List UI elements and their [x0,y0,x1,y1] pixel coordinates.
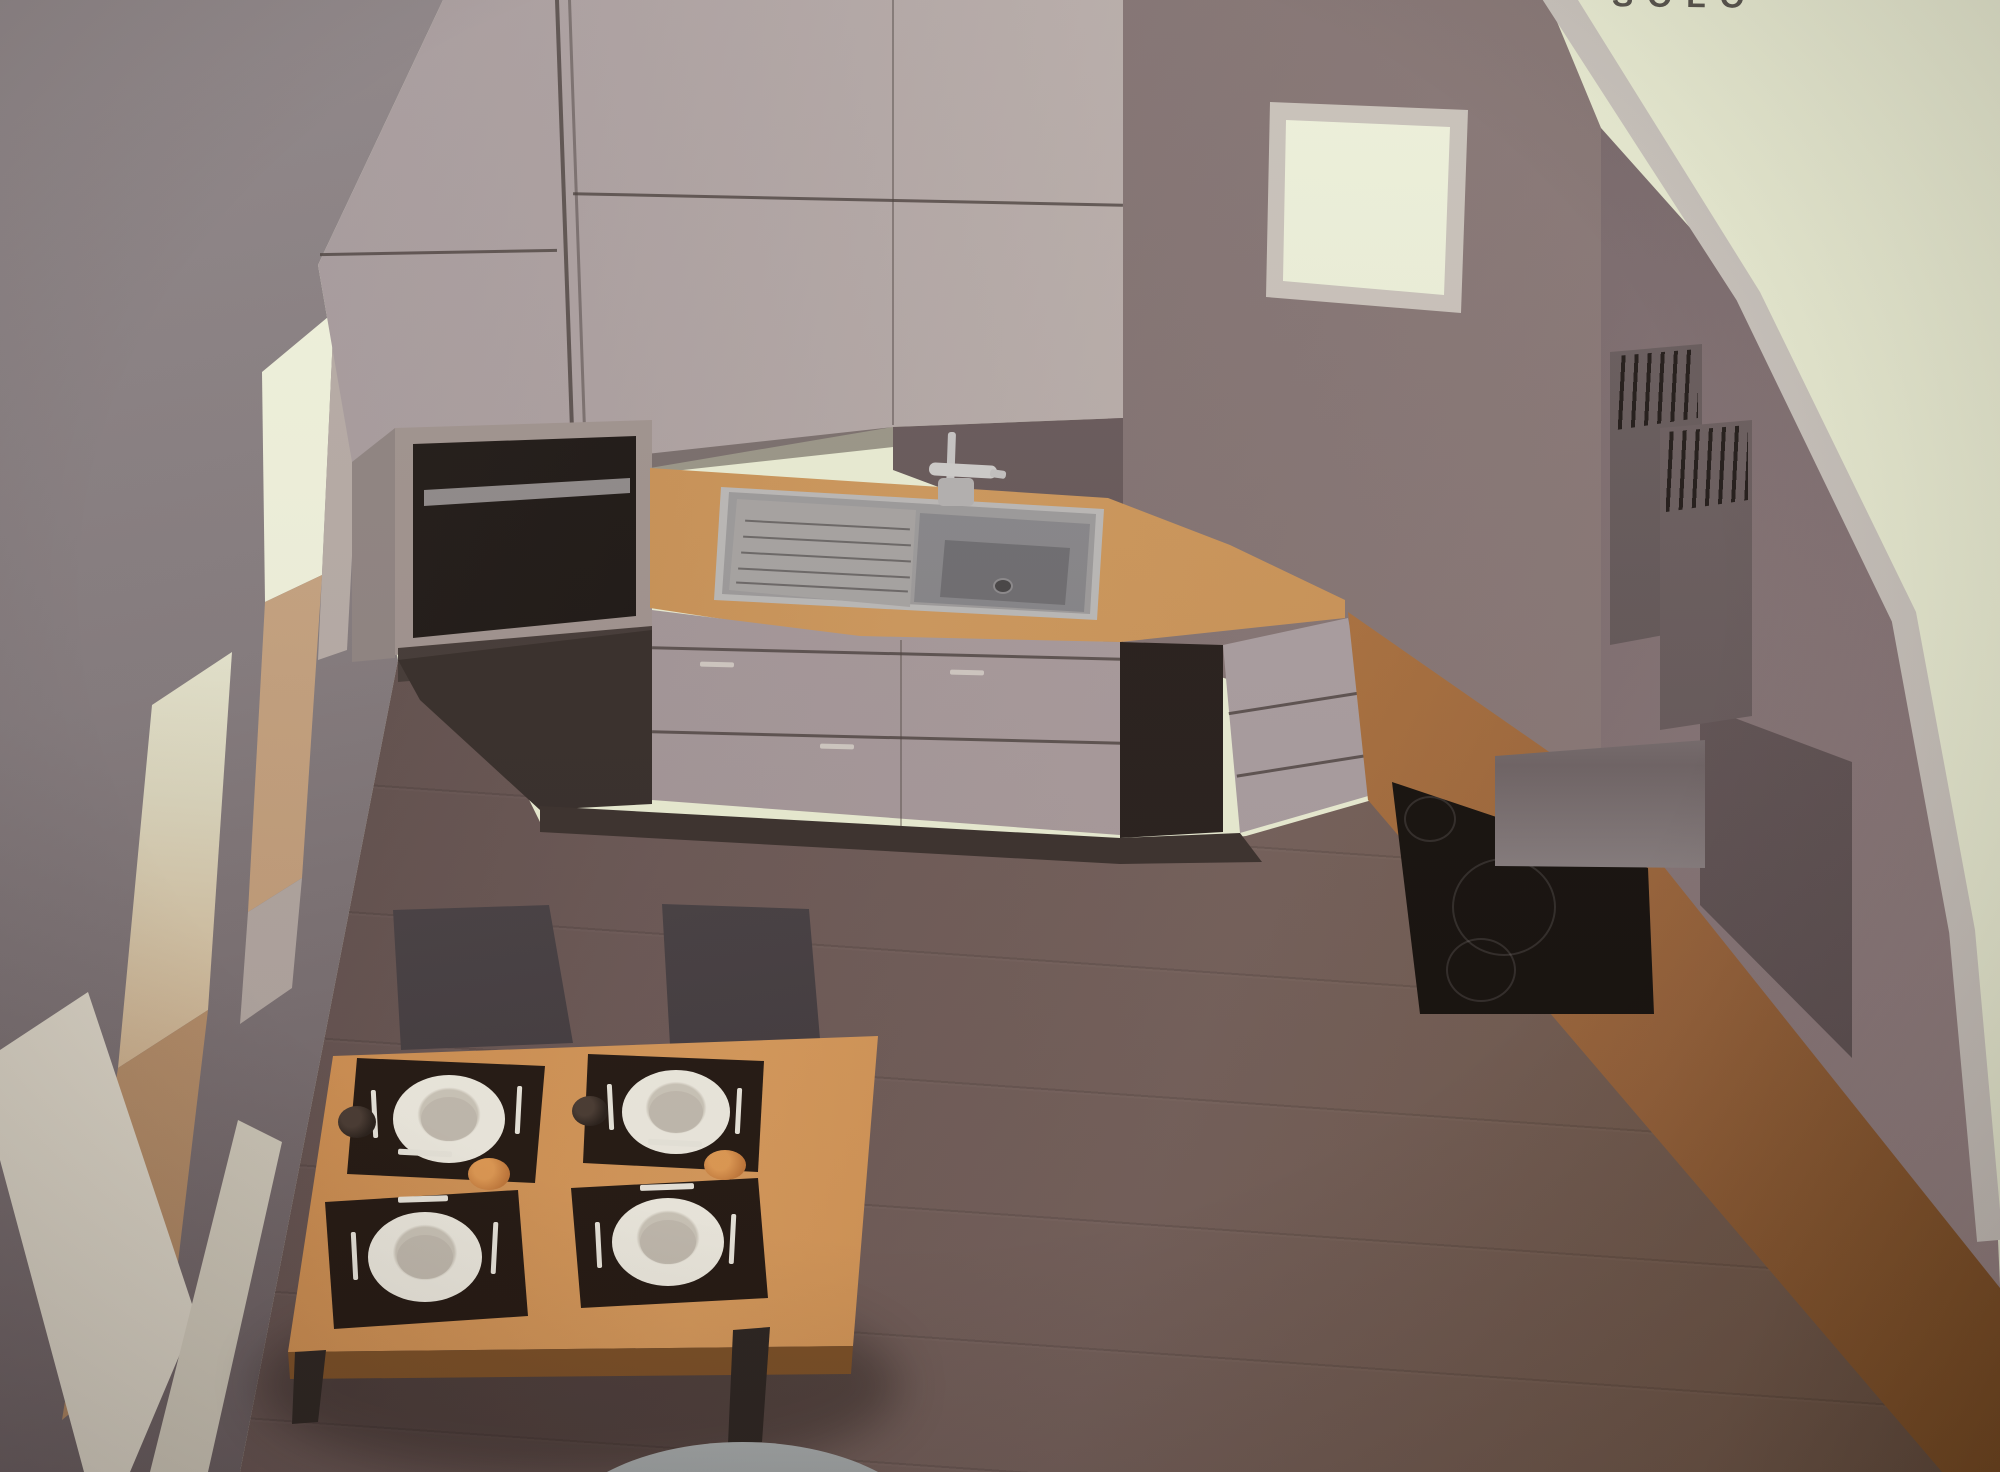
mug [338,1106,376,1138]
orange-fruit [468,1158,510,1190]
drawer-handle [700,662,734,668]
kitchen-3d-render: SOLO [0,0,2000,1472]
hob-zone [1404,796,1456,842]
side-plate [640,1220,696,1264]
side-plate [397,1235,453,1279]
sink-drain-hole [993,578,1013,594]
drawer-handle [950,670,984,676]
cabinet-seam-vertical [892,0,894,425]
drawer-handle [820,744,854,750]
page-caption-fragment: SOLO [1612,0,1759,16]
side-plate [649,1091,703,1133]
side-plate [421,1097,477,1141]
hob-zone [1446,938,1516,1002]
faucet-base [938,478,974,506]
drawer-seam-vertical [900,640,902,832]
orange-fruit [704,1150,746,1180]
mug [572,1096,608,1126]
